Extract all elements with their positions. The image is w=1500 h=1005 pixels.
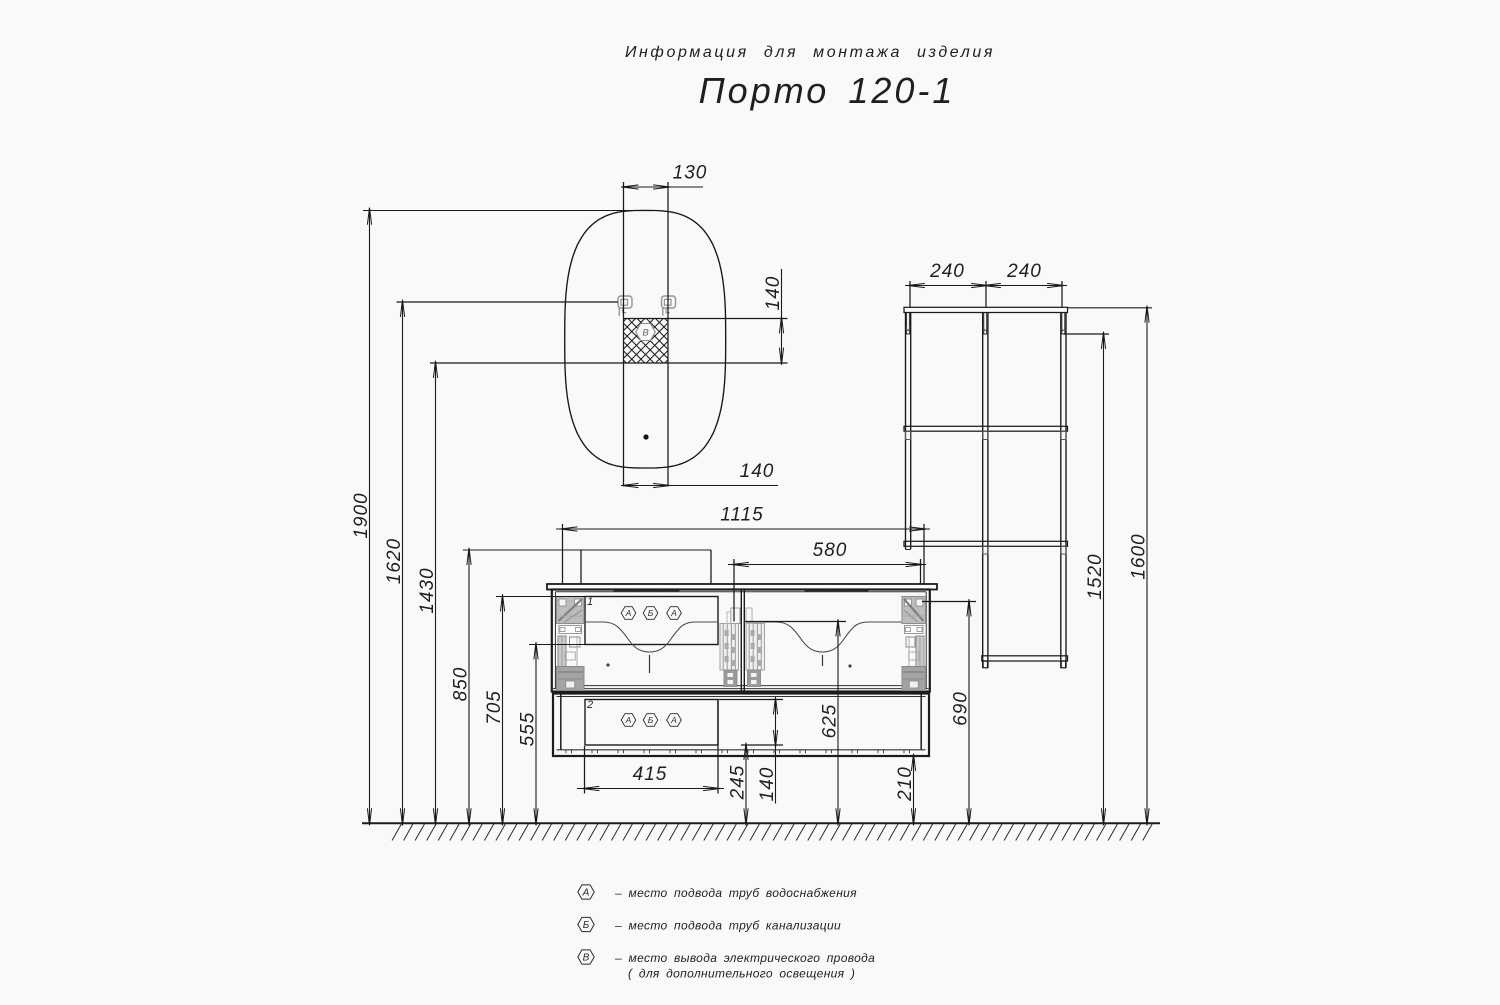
svg-text:140: 140 [763,276,784,311]
svg-text:1: 1 [587,596,593,608]
svg-text:140: 140 [740,461,775,482]
svg-text:1620: 1620 [384,538,405,584]
svg-text:1115: 1115 [720,505,763,526]
svg-text:– место вывода электрического: – место вывода электрического провода [614,951,875,965]
svg-text:Б: Б [583,920,590,931]
svg-text:140: 140 [757,767,778,802]
svg-text:( для дополнительного освещени: ( для дополнительного освещения ) [628,967,855,981]
svg-text:Порто 120-1: Порто 120-1 [699,70,956,111]
svg-text:А: А [582,888,590,899]
svg-text:– место подвода труб водоснаб: – место подвода труб водоснабжения [614,886,857,900]
svg-text:580: 580 [813,540,848,561]
svg-text:245: 245 [728,765,749,801]
svg-text:Б: Б [648,715,654,725]
svg-text:А: А [625,608,632,618]
svg-text:В: В [642,328,649,339]
svg-text:555: 555 [518,712,539,747]
svg-text:А: А [670,608,677,618]
svg-text:705: 705 [484,690,505,725]
svg-text:240: 240 [929,261,965,282]
svg-text:1600: 1600 [1129,533,1150,579]
svg-text:В: В [583,953,590,964]
svg-text:130: 130 [673,163,708,184]
svg-text:2: 2 [586,699,593,711]
svg-text:Информация для монтажа изделия: Информация для монтажа изделия [625,44,995,61]
svg-text:850: 850 [451,667,472,702]
svg-text:1900: 1900 [351,492,372,538]
svg-text:А: А [670,715,677,725]
svg-text:415: 415 [633,764,668,785]
svg-text:625: 625 [820,704,841,739]
svg-text:1430: 1430 [417,567,438,613]
svg-text:– место подвода труб канализа: – место подвода труб канализации [614,919,841,933]
svg-text:240: 240 [1006,261,1042,282]
svg-text:690: 690 [951,691,972,726]
svg-text:210: 210 [895,766,916,802]
svg-text:А: А [625,715,632,725]
svg-text:Б: Б [648,608,654,618]
svg-text:1520: 1520 [1085,553,1106,599]
